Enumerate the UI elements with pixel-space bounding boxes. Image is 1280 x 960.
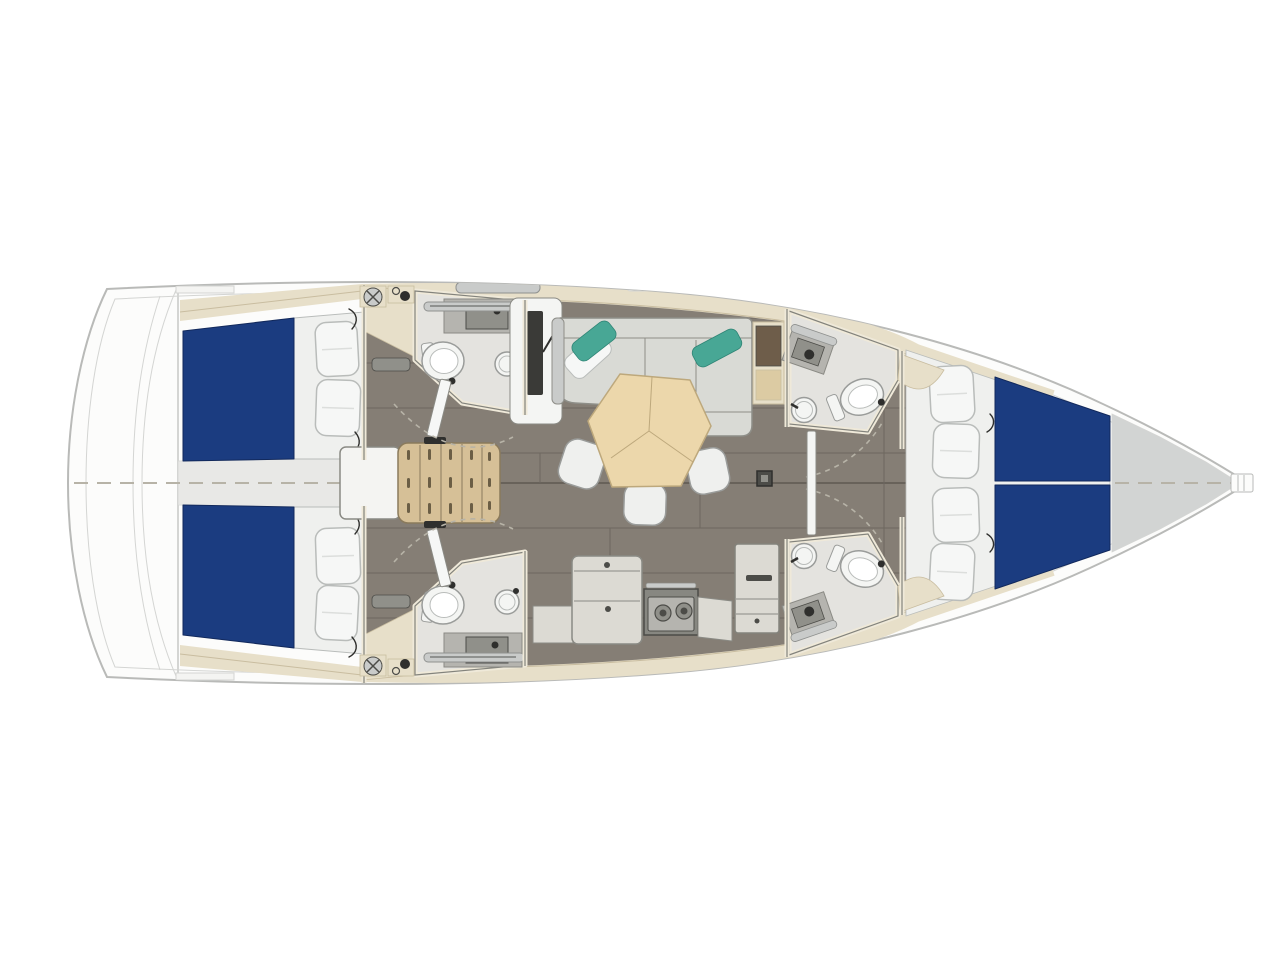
deck-plug-icon — [400, 291, 410, 301]
sink-drain — [604, 562, 610, 568]
side-cabinet — [753, 322, 784, 404]
cabinet-door — [756, 370, 781, 400]
cabinet-open-top — [756, 326, 781, 366]
pillow — [315, 527, 361, 585]
mast-post — [757, 471, 772, 486]
galley-counter — [572, 556, 642, 644]
stove — [644, 583, 698, 635]
bow — [1112, 414, 1244, 552]
forward-cabin — [898, 350, 1110, 616]
tap — [513, 588, 519, 594]
faucet — [492, 642, 499, 649]
vent-slot — [372, 358, 410, 371]
deck-hatch-white — [626, 280, 706, 291]
cabinet-knob — [605, 606, 611, 612]
sofa-armrest — [552, 318, 564, 404]
deck-plug-icon — [400, 659, 410, 669]
forward-cabin-door — [807, 431, 816, 535]
companionway-landing — [340, 447, 400, 519]
pillow — [315, 585, 360, 641]
fridge-locker — [735, 544, 779, 633]
pillow — [315, 379, 361, 437]
washbasin — [791, 398, 817, 423]
vent-slot — [372, 595, 410, 608]
double-berth-mattress — [183, 505, 294, 648]
pillow — [932, 487, 980, 543]
stern-step-bottom — [176, 673, 234, 680]
yacht-layout-plan — [0, 0, 1280, 960]
washbasin — [791, 544, 817, 569]
locker-handle — [746, 575, 772, 581]
stove-handle — [646, 583, 696, 588]
double-berth-mattress — [183, 318, 294, 461]
pillow — [315, 321, 360, 377]
bow-anchor-fitting — [1231, 474, 1253, 492]
pillow — [932, 423, 980, 479]
galley-side-counter — [698, 597, 732, 641]
galley-cabinet — [533, 606, 573, 643]
interior — [74, 280, 1244, 683]
yacht-layout-page — [0, 0, 1280, 960]
drawer-knob — [755, 619, 760, 624]
stool — [623, 482, 666, 525]
stern-step-top — [176, 286, 234, 293]
tv-screen — [527, 311, 543, 395]
